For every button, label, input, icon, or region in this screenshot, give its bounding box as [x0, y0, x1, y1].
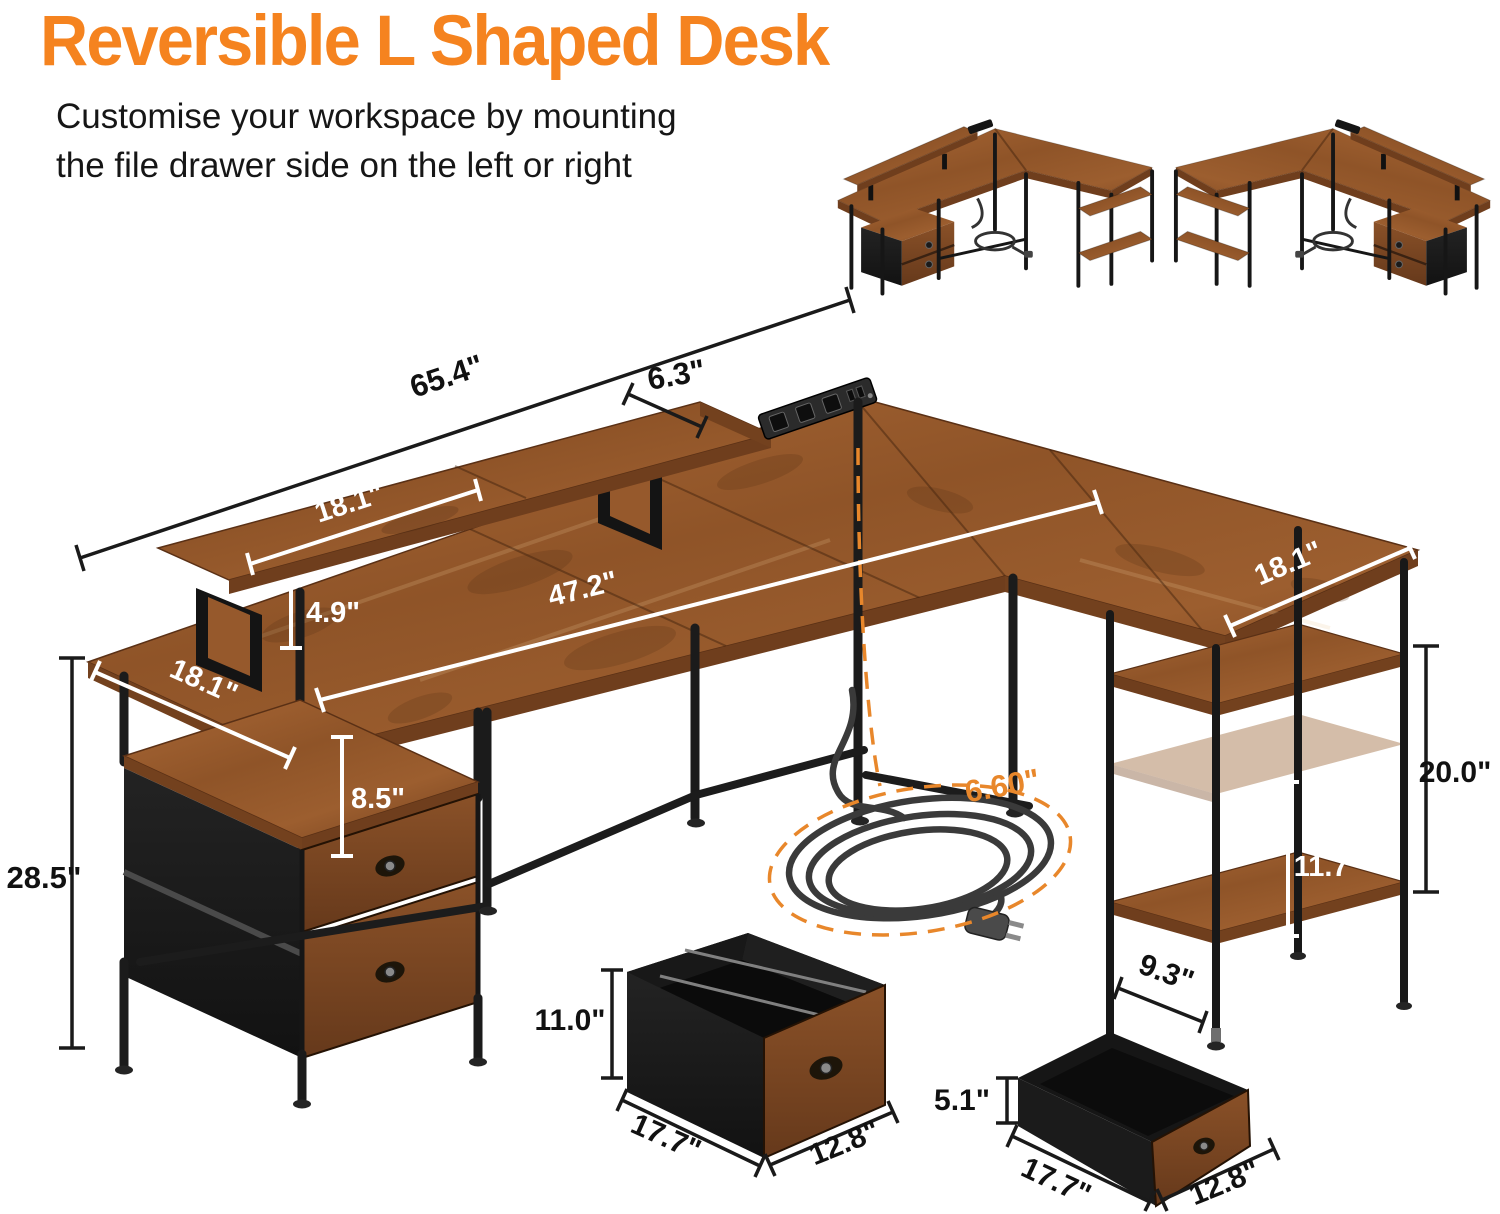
dim-top-drawer-height: 5.1": [934, 1078, 1018, 1123]
mini-desk-left: [838, 119, 1152, 294]
dim-label-shelf-clearance: 11.7": [1294, 851, 1363, 883]
dim-label-monitor-shelf-depth: 6.3": [645, 352, 708, 397]
subtitle: Customise your workspace by mounting the…: [56, 92, 879, 190]
header: Reversible L Shaped Desk Customise your …: [40, 0, 879, 190]
dim-label-overall-width: 65.4": [406, 348, 488, 405]
dim-label-file-drawer-height: 11.0": [535, 1004, 606, 1037]
mini-desk-right: [1176, 119, 1490, 294]
dim-label-right-frame-height: 20.0": [1419, 756, 1492, 789]
subtitle-line-2: the file drawer side on the left or righ…: [56, 141, 879, 190]
dim-file-drawer-height: 11.0": [535, 970, 623, 1078]
dim-label-shelf-depth: 9.3": [1134, 948, 1198, 998]
dim-label-overall-height: 28.5": [6, 860, 81, 895]
product-infographic: Reversible L Shaped Desk Customise your …: [0, 0, 1500, 1214]
dim-shelf-depth: 9.3": [1114, 948, 1207, 1033]
subtitle-line-1: Customise your workspace by mounting: [56, 92, 879, 141]
dim-label-cabinet-opening-height: 8.5": [351, 783, 405, 815]
page-title: Reversible L Shaped Desk: [40, 0, 828, 84]
power-plug: [964, 906, 1026, 945]
dim-right-frame-height: 20.0": [1413, 646, 1491, 892]
dim-overall-height: 28.5": [6, 658, 85, 1048]
dim-label-top-drawer-height: 5.1": [934, 1084, 990, 1117]
dim-label-monitor-shelf-height: 4.9": [306, 597, 360, 629]
